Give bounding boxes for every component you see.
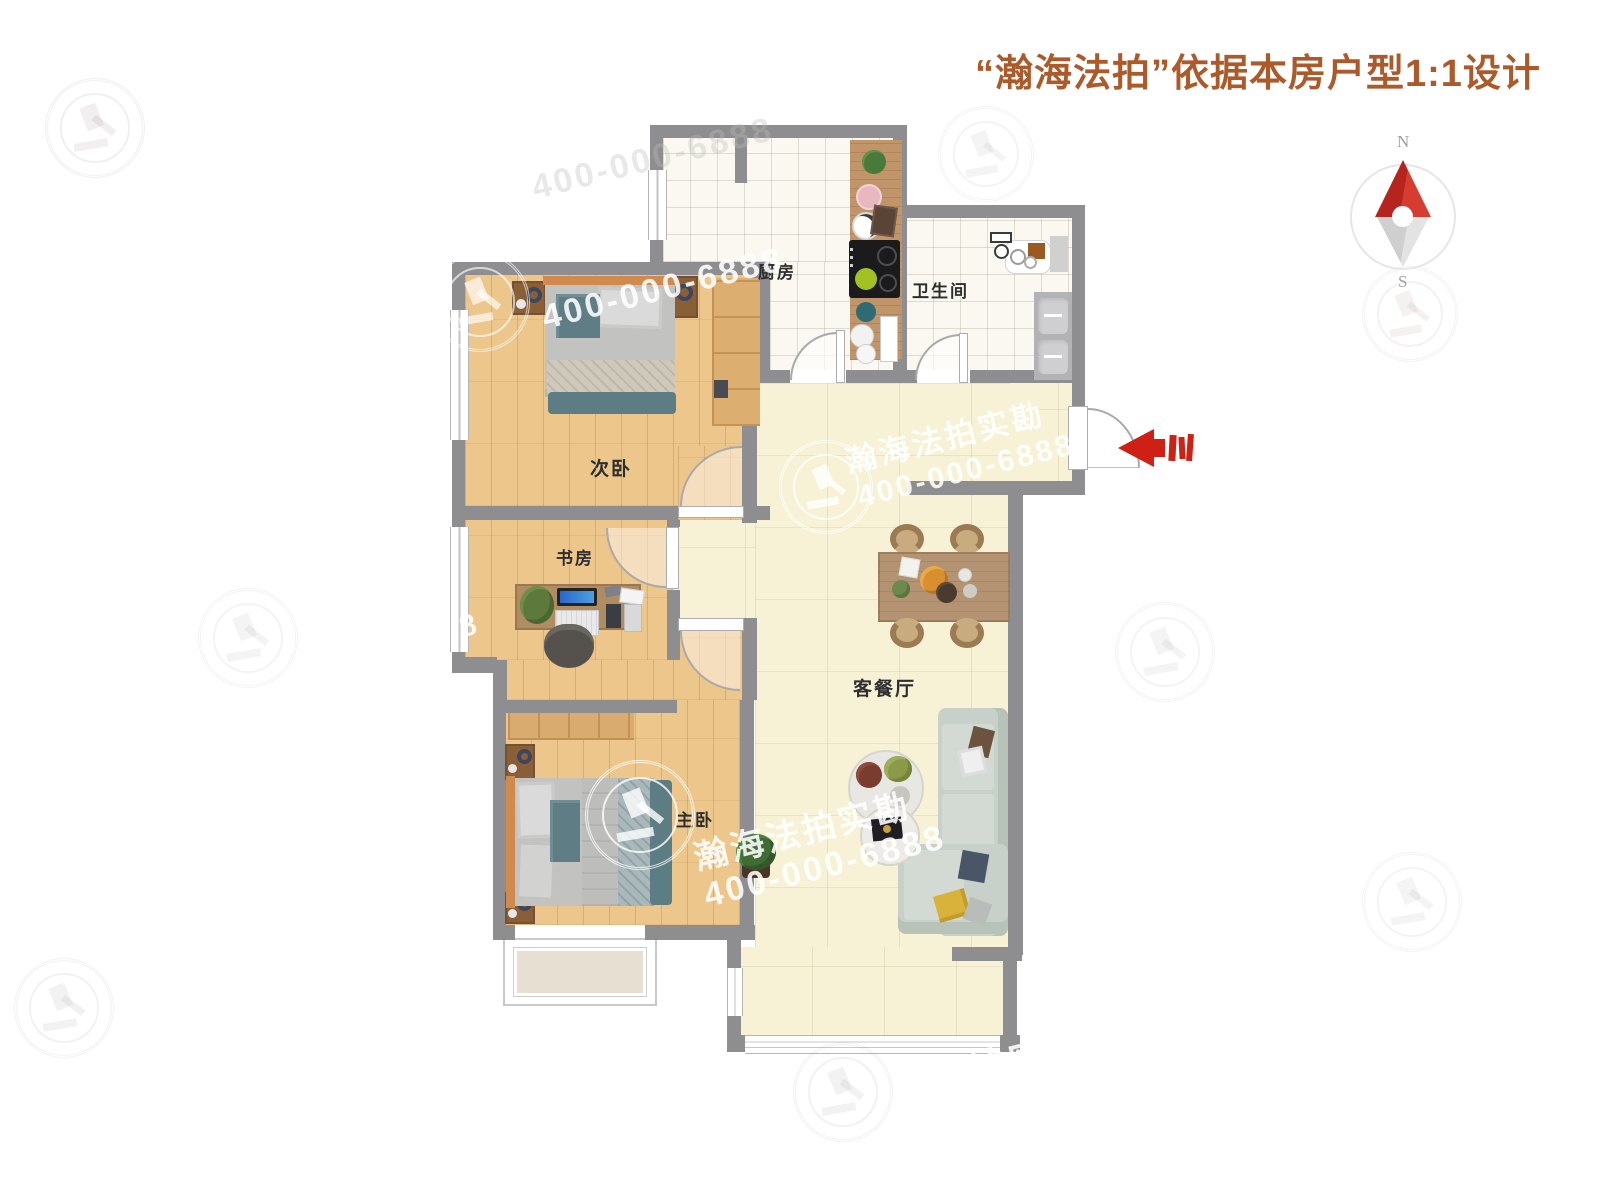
watermark-logo-icon: [793, 1042, 893, 1142]
wall: [645, 925, 755, 940]
decor: [517, 749, 532, 764]
floor-plan-page: 厨房 卫生间 次卧 书房 主卧 客餐厅 400-000-6888 400-000…: [0, 0, 1600, 1200]
dining-chair: [950, 618, 984, 648]
bed-headboard: [506, 776, 515, 908]
blanket: [547, 360, 675, 396]
door-leaf: [836, 330, 845, 383]
drain: [1044, 314, 1062, 317]
nightstand: [505, 744, 535, 780]
arrow-head: [1118, 429, 1154, 467]
potted-plant: [862, 150, 886, 174]
wall: [742, 618, 757, 700]
compass-hub: [1392, 206, 1413, 227]
wall: [452, 520, 465, 527]
plate: [856, 302, 876, 322]
dining-chair: [890, 618, 924, 648]
page-title: “瀚海法拍”依据本房户型1:1设计: [975, 42, 1541, 97]
monitor: [557, 588, 597, 606]
room-label-bathroom: 卫生间: [912, 277, 969, 302]
pillow: [958, 850, 990, 883]
compass-south-label: S: [1398, 272, 1407, 292]
office-chair: [544, 624, 594, 668]
door-leaf: [959, 333, 968, 383]
knob: [850, 248, 853, 251]
arrow-body: [1152, 439, 1165, 457]
notebook: [619, 587, 645, 605]
watermark-logo-icon: [430, 252, 530, 352]
knob: [850, 264, 853, 267]
entrance-arrow-icon: [1118, 428, 1196, 468]
decor: [508, 909, 517, 918]
door-leaf: [666, 527, 679, 589]
monitor-screen: [560, 591, 594, 603]
wall: [1008, 495, 1023, 955]
sink-bowl: [1024, 256, 1037, 269]
wall: [1072, 468, 1085, 482]
knob: [850, 256, 853, 259]
wall: [452, 506, 678, 520]
burner: [877, 246, 897, 266]
room-label-second-bedroom: 次卧: [590, 454, 632, 481]
phone: [606, 604, 621, 628]
bowl: [963, 584, 977, 598]
vanity-side: [1050, 236, 1068, 272]
compass-icon: N S: [1340, 130, 1466, 295]
cutting-board: [880, 316, 898, 362]
wall: [452, 440, 465, 506]
cup: [958, 568, 972, 582]
toilet-tank: [990, 232, 1012, 243]
cooktop: [849, 240, 900, 298]
wardrobe: [712, 278, 760, 426]
watermark-logo-icon: [938, 106, 1034, 202]
arrow-bar: [1178, 437, 1185, 459]
grill-rack: [870, 204, 898, 237]
drain: [1044, 355, 1062, 358]
wardrobe: [508, 713, 634, 740]
wall: [745, 506, 770, 520]
decor: [508, 764, 517, 773]
arrow-bar: [1168, 435, 1176, 461]
wall: [1072, 218, 1085, 410]
bay-window-sill: [514, 948, 646, 996]
wall: [650, 240, 663, 264]
watermark-logo-icon: [45, 78, 145, 178]
wall: [770, 370, 790, 383]
desk-plant: [520, 586, 554, 624]
tray: [936, 582, 957, 603]
arrow-bar: [1186, 434, 1194, 461]
watermark-logo-icon: [1362, 852, 1462, 952]
watermark-logo-icon: [779, 440, 873, 534]
toilet-bowl: [994, 244, 1009, 259]
potted-plant: [884, 756, 912, 782]
wall: [845, 370, 917, 383]
pot: [855, 268, 877, 290]
watermark-logo-icon: [585, 760, 695, 870]
dining-chair: [950, 524, 984, 554]
dining-chair: [890, 524, 924, 554]
wardrobe-handle: [714, 380, 728, 398]
wall: [493, 925, 515, 940]
pillow: [957, 746, 987, 778]
watermark-logo-icon: [14, 958, 114, 1058]
table-plant: [892, 580, 910, 598]
compass-north-label: N: [1397, 132, 1409, 152]
corridor-floor: [673, 520, 755, 620]
wall: [907, 205, 1085, 218]
burner: [879, 274, 897, 292]
room-label-study: 书房: [556, 544, 594, 569]
wall: [452, 657, 497, 673]
room-label-living-dining: 客餐厅: [853, 674, 916, 701]
watermark-logo-icon: [198, 588, 298, 688]
bed-throw: [548, 392, 676, 414]
pillow: [550, 800, 580, 862]
plate: [856, 344, 876, 364]
watermark-logo-icon: [1115, 602, 1215, 702]
door-leaf: [678, 506, 744, 518]
wall: [493, 700, 677, 713]
desk-item: [624, 604, 642, 632]
wall: [667, 520, 680, 527]
window: [648, 170, 667, 240]
door-leaf: [678, 618, 744, 631]
window: [727, 968, 743, 1016]
napkin: [898, 556, 920, 578]
